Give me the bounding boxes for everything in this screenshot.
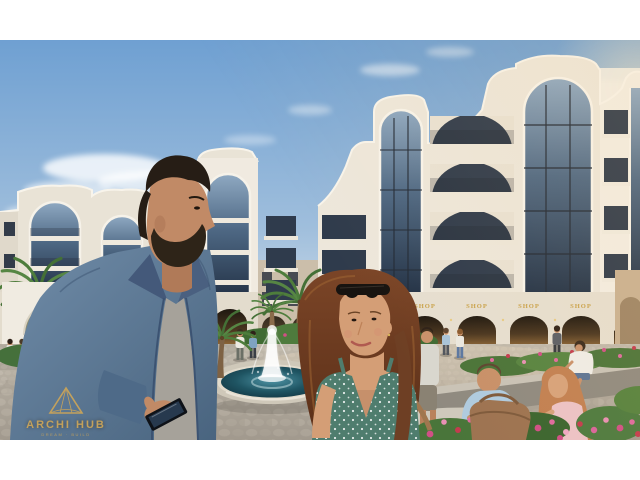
- warm-light-overlay: [0, 40, 640, 440]
- bottom-letterbox: [0, 440, 640, 480]
- render-canvas: SHOP SHOP SHOP SHOP SHOP: [0, 0, 640, 480]
- top-letterbox: [0, 0, 640, 40]
- scene-svg: SHOP SHOP SHOP SHOP SHOP: [0, 40, 640, 440]
- architectural-render-photo: SHOP SHOP SHOP SHOP SHOP: [0, 40, 640, 440]
